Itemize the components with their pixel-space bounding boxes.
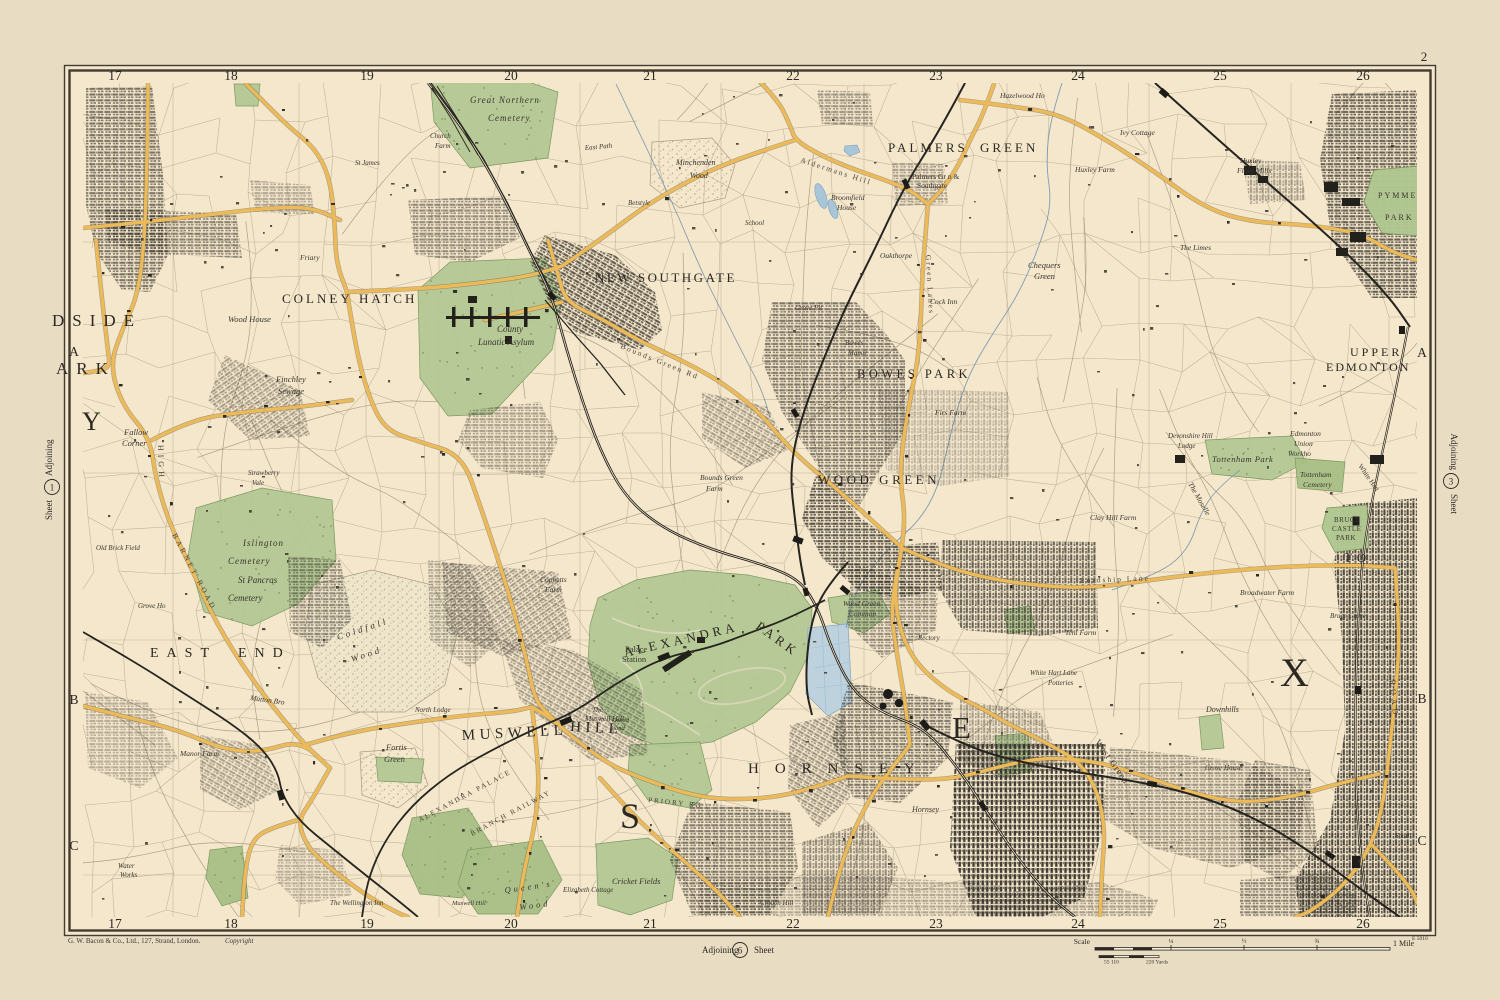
svg-text:Farm: Farm: [434, 142, 451, 150]
svg-text:Grand: Grand: [612, 717, 630, 724]
svg-text:END: END: [238, 646, 291, 661]
svg-text:25: 25: [1213, 68, 1227, 83]
svg-text:Oakthorpe: Oakthorpe: [880, 251, 913, 260]
svg-text:Coppetts: Coppetts: [540, 575, 567, 584]
svg-text:Sheet: Sheet: [754, 945, 774, 955]
svg-text:Station: Station: [622, 654, 647, 664]
svg-text:Elizabeth Cottage: Elizabeth Cottage: [562, 886, 613, 894]
svg-text:Flour Mills: Flour Mills: [1236, 166, 1271, 175]
svg-text:HORNSEY: HORNSEY: [748, 761, 931, 777]
svg-text:A: A: [1417, 345, 1427, 360]
svg-text:220 Yards: 220 Yards: [1146, 960, 1168, 966]
svg-text:Finchley: Finchley: [275, 374, 306, 384]
svg-text:Great Northern: Great Northern: [470, 95, 540, 105]
svg-text:EAST: EAST: [150, 646, 217, 661]
svg-text:Devonshire Hill: Devonshire Hill: [1167, 432, 1213, 440]
svg-text:Fortis: Fortis: [385, 742, 407, 752]
svg-text:DSIDE: DSIDE: [52, 311, 142, 330]
svg-text:Green: Green: [384, 754, 405, 764]
svg-text:The Limes: The Limes: [1180, 243, 1211, 252]
svg-text:G. W. Bacon & Co., Ltd., 127,: G. W. Bacon & Co., Ltd., 127, Strand, Lo…: [68, 937, 201, 945]
svg-text:Crouch Hill: Crouch Hill: [760, 899, 793, 907]
svg-text:Rectory: Rectory: [917, 634, 941, 642]
svg-text:Tent Farm: Tent Farm: [1065, 628, 1097, 637]
svg-text:Workho: Workho: [1288, 449, 1311, 458]
svg-text:22: 22: [786, 916, 800, 931]
svg-text:South: South: [1395, 832, 1411, 840]
svg-text:Works: Works: [120, 871, 138, 879]
svg-text:½: ½: [1242, 938, 1247, 945]
svg-text:1: 1: [50, 483, 55, 493]
svg-text:55 110: 55 110: [1104, 960, 1119, 966]
svg-text:18: 18: [224, 916, 238, 931]
svg-text:A: A: [69, 344, 79, 359]
svg-text:2: 2: [1421, 49, 1428, 64]
svg-text:Palmers Gr n &: Palmers Gr n &: [912, 172, 959, 181]
svg-text:3: 3: [1449, 477, 1454, 487]
svg-text:Common: Common: [849, 609, 876, 618]
svg-text:17: 17: [108, 68, 122, 83]
svg-text:Cemetery: Cemetery: [1303, 480, 1332, 489]
svg-text:Farm: Farm: [705, 484, 723, 493]
svg-text:School: School: [745, 219, 764, 227]
svg-text:X: X: [1280, 650, 1309, 695]
svg-text:Union: Union: [1294, 439, 1313, 448]
svg-text:Grove Pit: Grove Pit: [795, 304, 823, 312]
svg-text:Water: Water: [118, 862, 135, 870]
svg-text:Minchenden: Minchenden: [675, 158, 716, 167]
svg-text:WOOD GREEN: WOOD GREEN: [818, 472, 940, 487]
svg-text:House: House: [836, 203, 857, 212]
svg-text:Wood: Wood: [690, 171, 709, 180]
svg-text:PALMERS: PALMERS: [888, 140, 968, 155]
svg-text:HIGH: HIGH: [156, 445, 166, 481]
svg-text:Huxley: Huxley: [1239, 156, 1262, 165]
svg-text:19: 19: [360, 68, 374, 83]
svg-text:Cemetery: Cemetery: [488, 113, 530, 123]
svg-text:Tottenham Park: Tottenham Park: [1212, 454, 1273, 464]
svg-text:Cemetery: Cemetery: [228, 556, 270, 566]
svg-text:Bruce Grove: Bruce Grove: [1330, 612, 1366, 620]
svg-text:Broadwater Farm: Broadwater Farm: [1240, 588, 1295, 597]
svg-text:Vale: Vale: [252, 479, 264, 487]
svg-text:Adjoining: Adjoining: [1449, 433, 1459, 470]
svg-text:18: 18: [224, 68, 238, 83]
svg-text:CASTLE: CASTLE: [1332, 525, 1361, 533]
svg-text:¼: ¼: [1169, 938, 1174, 945]
svg-text:The Wellington Inn: The Wellington Inn: [330, 899, 384, 907]
svg-text:Cemetery: Cemetery: [228, 593, 262, 603]
svg-text:Downhills: Downhills: [1205, 705, 1239, 714]
svg-text:COLNEY: COLNEY: [282, 291, 353, 306]
svg-text:Muswell Hill: Muswell Hill: [451, 900, 486, 907]
svg-text:Scale: Scale: [1074, 937, 1091, 946]
svg-text:GREEN: GREEN: [980, 140, 1038, 155]
svg-text:Palace: Palace: [625, 644, 647, 654]
svg-text:¾: ¾: [1315, 938, 1320, 945]
svg-text:B: B: [1417, 691, 1426, 706]
svg-text:Old Brick Field: Old Brick Field: [96, 544, 140, 552]
svg-text:26: 26: [1356, 68, 1370, 83]
svg-text:Hornsey: Hornsey: [911, 805, 940, 814]
svg-text:Y: Y: [82, 407, 101, 436]
svg-text:Manor: Manor: [847, 349, 867, 357]
svg-text:Fallow: Fallow: [123, 427, 148, 437]
svg-text:22: 22: [786, 68, 800, 83]
svg-text:White Hart Lane: White Hart Lane: [1030, 669, 1077, 677]
svg-text:E 5010: E 5010: [1412, 936, 1428, 942]
svg-text:E: E: [952, 710, 971, 745]
svg-text:Bowes: Bowes: [845, 339, 864, 347]
svg-text:Clay Hill Farm: Clay Hill Farm: [1090, 513, 1137, 522]
svg-text:St James: St James: [355, 159, 380, 167]
svg-text:Firs Farm: Firs Farm: [934, 408, 967, 417]
svg-text:Corner: Corner: [122, 438, 147, 448]
svg-text:Grove Ho: Grove Ho: [138, 602, 166, 610]
svg-text:Bounds Green: Bounds Green: [700, 473, 743, 482]
svg-text:Copyright: Copyright: [225, 937, 254, 945]
svg-text:21: 21: [643, 916, 657, 931]
svg-text:24: 24: [1071, 916, 1085, 931]
svg-text:The: The: [592, 705, 604, 714]
svg-text:UPPER: UPPER: [1350, 345, 1402, 359]
svg-text:Strawberry: Strawberry: [248, 469, 280, 477]
svg-text:Sheet: Sheet: [44, 500, 54, 520]
svg-text:6: 6: [738, 946, 743, 956]
svg-text:Edmonton: Edmonton: [1289, 429, 1321, 438]
svg-text:Wood Green: Wood Green: [843, 599, 880, 608]
svg-text:HATCH: HATCH: [359, 291, 417, 306]
svg-text:Potteries: Potteries: [1047, 679, 1074, 687]
svg-text:23: 23: [929, 68, 943, 83]
svg-text:Tottenham: Tottenham: [1300, 470, 1332, 479]
svg-text:St Pancras: St Pancras: [238, 575, 278, 585]
svg-text:C: C: [1417, 833, 1426, 848]
svg-text:Stand: Stand: [610, 725, 626, 732]
svg-text:BOWES PARK: BOWES PARK: [857, 367, 971, 381]
svg-text:Wood House: Wood House: [228, 314, 271, 324]
svg-text:Grove House: Grove House: [1205, 764, 1242, 772]
svg-text:21: 21: [643, 68, 657, 83]
svg-text:Farm: Farm: [544, 585, 562, 594]
svg-text:20: 20: [504, 916, 518, 931]
svg-text:Adjoining: Adjoining: [44, 439, 54, 476]
svg-text:C: C: [69, 838, 78, 853]
svg-text:19: 19: [360, 916, 374, 931]
svg-text:Islington: Islington: [242, 538, 284, 548]
svg-text:EDMONTON: EDMONTON: [1326, 360, 1410, 374]
svg-text:Hazelwood Ho: Hazelwood Ho: [999, 91, 1045, 100]
svg-text:Chequers: Chequers: [1028, 260, 1061, 270]
svg-text:PARK: PARK: [1385, 213, 1414, 222]
svg-text:S: S: [620, 796, 640, 836]
svg-text:Cricket Fields: Cricket Fields: [612, 876, 661, 886]
svg-text:Green: Green: [1034, 271, 1055, 281]
svg-text:PARK: PARK: [1336, 534, 1356, 542]
svg-text:PYMME: PYMME: [1378, 191, 1417, 200]
svg-text:Broomfield: Broomfield: [831, 193, 865, 202]
svg-text:Lodge: Lodge: [1177, 442, 1196, 450]
svg-text:23: 23: [929, 916, 943, 931]
svg-text:Sheet: Sheet: [1449, 494, 1459, 514]
svg-text:Southgate: Southgate: [917, 181, 948, 190]
svg-text:Church: Church: [430, 132, 451, 140]
svg-text:Friary: Friary: [299, 253, 320, 262]
svg-text:TO: TO: [1344, 550, 1371, 565]
svg-text:Manor Farm: Manor Farm: [179, 749, 220, 758]
svg-text:North Lodge: North Lodge: [414, 706, 451, 714]
svg-text:Betstyle: Betstyle: [628, 199, 650, 207]
svg-text:B: B: [69, 692, 78, 707]
svg-text:Ivy Cottage: Ivy Cottage: [1119, 128, 1155, 137]
svg-text:Sewage: Sewage: [278, 386, 304, 396]
svg-text:24: 24: [1071, 68, 1085, 83]
svg-text:NEW SOUTHGATE: NEW SOUTHGATE: [595, 270, 737, 285]
svg-text:17: 17: [108, 916, 122, 931]
svg-text:26: 26: [1356, 916, 1370, 931]
svg-text:Lunatic Asylum: Lunatic Asylum: [477, 337, 535, 347]
svg-text:20: 20: [504, 68, 518, 83]
svg-text:25: 25: [1213, 916, 1227, 931]
svg-text:Huxley Farm: Huxley Farm: [1074, 165, 1115, 174]
svg-text:BRUCE: BRUCE: [1334, 516, 1360, 524]
svg-text:County: County: [497, 324, 523, 334]
